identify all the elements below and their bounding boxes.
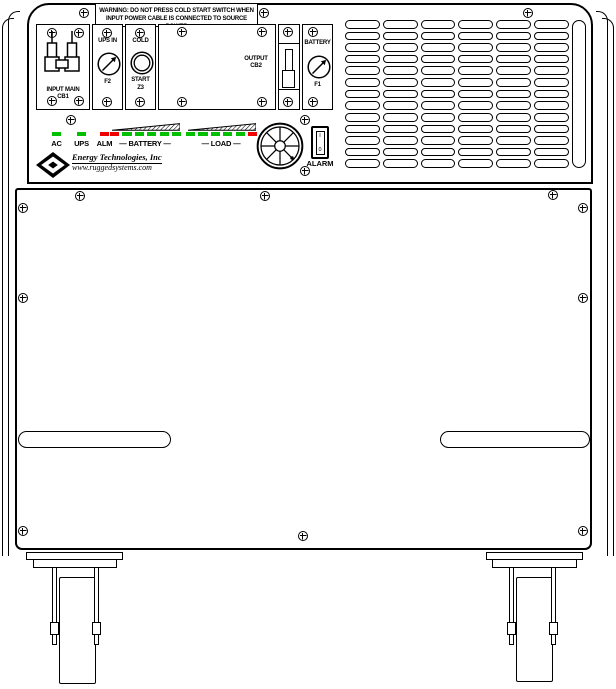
input-breaker-label: INPUT MAIN [37,87,89,94]
ups-input-fuse-designator: F2 [93,79,122,86]
vent-slot [496,113,531,122]
vent-slot [421,101,456,110]
ups-led [77,132,86,137]
vent-slot [534,66,569,75]
output-breaker-body[interactable] [282,70,295,88]
vent-slot [383,159,418,168]
output-breaker-designator: CB2 [233,63,279,70]
battery-fuse-designator: F1 [303,82,332,89]
handle-slot-left [18,431,171,448]
screw [308,27,318,37]
fan-icon [256,122,304,170]
vent-slot [534,148,569,157]
ac-led-label: AC [45,139,69,148]
cold-start-label-top: COLD [126,38,155,45]
screw [18,526,28,536]
screw [102,97,112,107]
cold-start-pushbutton[interactable] [130,51,154,75]
vent-slot [345,159,380,168]
red-led [110,132,119,137]
vent-slot [458,90,493,99]
screw [75,191,85,201]
screw [259,8,269,18]
green-led [223,132,232,137]
vent-slot [458,101,493,110]
green-led [172,132,181,137]
output-breaker-lever[interactable] [285,49,293,72]
cold-start-label-mid: START [126,77,155,84]
vent-slot [458,55,493,64]
vent-slot [421,136,456,145]
screw [257,27,267,37]
alarm-rocker-switch[interactable]: I 0 [311,126,329,159]
screw [578,293,588,303]
warning-line1: WARNING: DO NOT PRESS COLD START SWITCH … [96,7,257,15]
vent-slot [534,32,569,41]
vent-slot [534,101,569,110]
caster-right-axle [549,622,558,635]
ups-input-fuse-holder[interactable] [97,52,121,76]
vent-slot [421,32,456,41]
screw [18,293,28,303]
vent-slot [383,148,418,157]
screw [300,115,310,125]
battery-fuse-holder[interactable] [307,55,331,79]
caster-left-axle [92,622,101,635]
side-edge-right-outer [602,18,614,556]
vent-slot [496,125,531,134]
vent-slot [496,148,531,157]
vent-slot [421,66,456,75]
screw [47,28,57,38]
vent-slot [421,113,456,122]
green-led [211,132,220,137]
vent-slot [345,125,380,134]
green-led [236,132,245,137]
vent-slot [534,90,569,99]
vent-slot [345,90,380,99]
battery-fuse-panel: BATTERY F1 [302,24,333,110]
alarm-on-mark: I [319,133,321,139]
vent-slot [345,20,380,29]
screw [47,96,57,106]
load-led-strip [186,132,257,137]
green-led [186,132,195,137]
alm-led [100,132,109,137]
screw [74,96,84,106]
vent-slot [345,148,380,157]
vent-slot [496,159,531,168]
company-website: www.ruggedsystems.com [72,163,152,172]
vent-slot [496,66,531,75]
vent-slot [534,113,569,122]
screw [135,28,145,38]
vent-slot [458,66,493,75]
vent-slot [345,113,380,122]
ups-front-panel-drawing: WARNING: DO NOT PRESS COLD START SWITCH … [0,0,616,689]
vent-slot [345,66,380,75]
screw [79,8,89,18]
output-breaker-label: OUTPUT [233,56,279,63]
vent-slot [383,78,418,87]
screw [177,97,187,107]
vent-slot [345,78,380,87]
alarm-off-mark: 0 [318,147,321,153]
vent-slot [534,125,569,134]
company-name: Energy Technologies, Inc [72,152,162,164]
vent-slot [383,136,418,145]
vent-slot [421,148,456,157]
vent-slot [345,101,380,110]
vent-slot [458,125,493,134]
battery-fuse-label: BATTERY [303,40,332,47]
load-led-label: — LOAD — [183,139,259,148]
screw [308,97,318,107]
screw [578,203,588,213]
screw [18,203,28,213]
lower-access-panel [15,188,592,550]
vent-slot [421,43,456,52]
vent-slot [345,43,380,52]
panel-divider-line [278,89,300,90]
cold-start-designator: Z3 [126,85,155,92]
ups-led-label: UPS [70,139,94,148]
ac-led [52,132,61,137]
vent-slot [383,90,418,99]
screw [102,28,112,38]
screw [523,8,533,18]
battery-led-strip [110,132,181,137]
vent-slot [458,78,493,87]
screw [177,27,187,37]
vent-slot [534,136,569,145]
vent-slot [496,101,531,110]
vent-slot [534,78,569,87]
vent-end-slot [572,20,586,168]
screw [578,526,588,536]
vent-slot [458,43,493,52]
vent-slot [496,78,531,87]
vent-grille [345,20,569,168]
vent-slot [458,32,493,41]
vent-slot [345,55,380,64]
vent-slot [421,159,456,168]
load-level-ramp-icon [188,123,256,131]
vent-slot [534,159,569,168]
screw [135,97,145,107]
green-led [147,132,156,137]
vent-slot [383,43,418,52]
screw [66,115,76,125]
screw [548,190,558,200]
screw [283,27,293,37]
company-logo-icon [36,152,70,178]
circuit-breaker-handles-icon[interactable] [39,31,85,87]
caster-left-top-plate [33,559,117,568]
green-led [160,132,169,137]
vent-slot [458,159,493,168]
green-led [122,132,131,137]
vent-slot [421,90,456,99]
vent-slot [383,66,418,75]
battery-level-ramp-icon [112,123,180,131]
vent-slot [458,136,493,145]
green-led [135,132,144,137]
screw [74,28,84,38]
vent-slot [534,20,569,29]
vent-slot [458,20,493,29]
vent-slot [496,32,531,41]
vent-slot [496,136,531,145]
caster-right-axle [507,622,516,635]
caster-right-wheel [516,577,553,682]
green-led [198,132,207,137]
vent-slot [421,55,456,64]
vent-slot [345,136,380,145]
vent-slot [458,148,493,157]
handle-slot-right [440,431,590,448]
battery-led-label: — BATTERY — [107,139,183,148]
vent-slot [421,78,456,87]
vent-slot [383,32,418,41]
screw [300,166,310,176]
vent-slot [383,20,418,29]
screw [257,97,267,107]
screw [283,97,293,107]
vent-slot [421,20,456,29]
vent-slot [496,43,531,52]
vent-slot [383,101,418,110]
vent-slot [496,90,531,99]
vent-slot [496,20,531,29]
vent-slot [345,32,380,41]
panel-divider-line [278,43,300,44]
vent-slot [383,113,418,122]
vent-slot [534,43,569,52]
vent-slot [458,113,493,122]
caster-left-axle [50,622,59,635]
vent-slot [496,55,531,64]
caster-right-top-plate [492,559,577,568]
vent-slot [534,55,569,64]
alarm-rocker-actuator[interactable]: I 0 [316,131,325,155]
vent-slot [383,55,418,64]
caster-left-wheel [59,577,96,684]
vent-slot [421,125,456,134]
ups-input-fuse-label: UPS IN [93,38,122,45]
screw [298,531,308,541]
screw [260,191,270,201]
vent-slot [383,125,418,134]
